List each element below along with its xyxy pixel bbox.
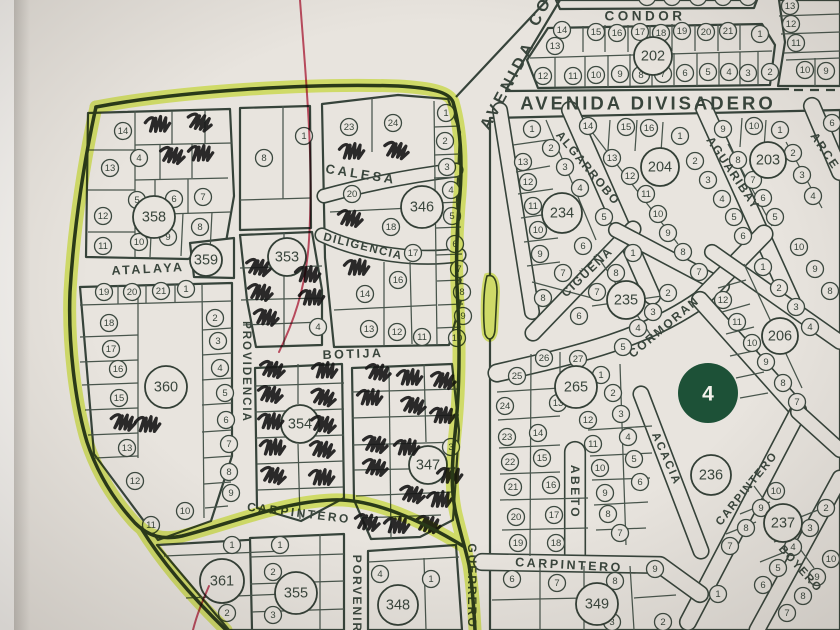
photo-vignette [0,0,840,630]
map-photo: 1413412567891011184232412345678910201817… [0,0,840,630]
cadastral-map: 1413412567891011184232412345678910201817… [0,0,840,630]
